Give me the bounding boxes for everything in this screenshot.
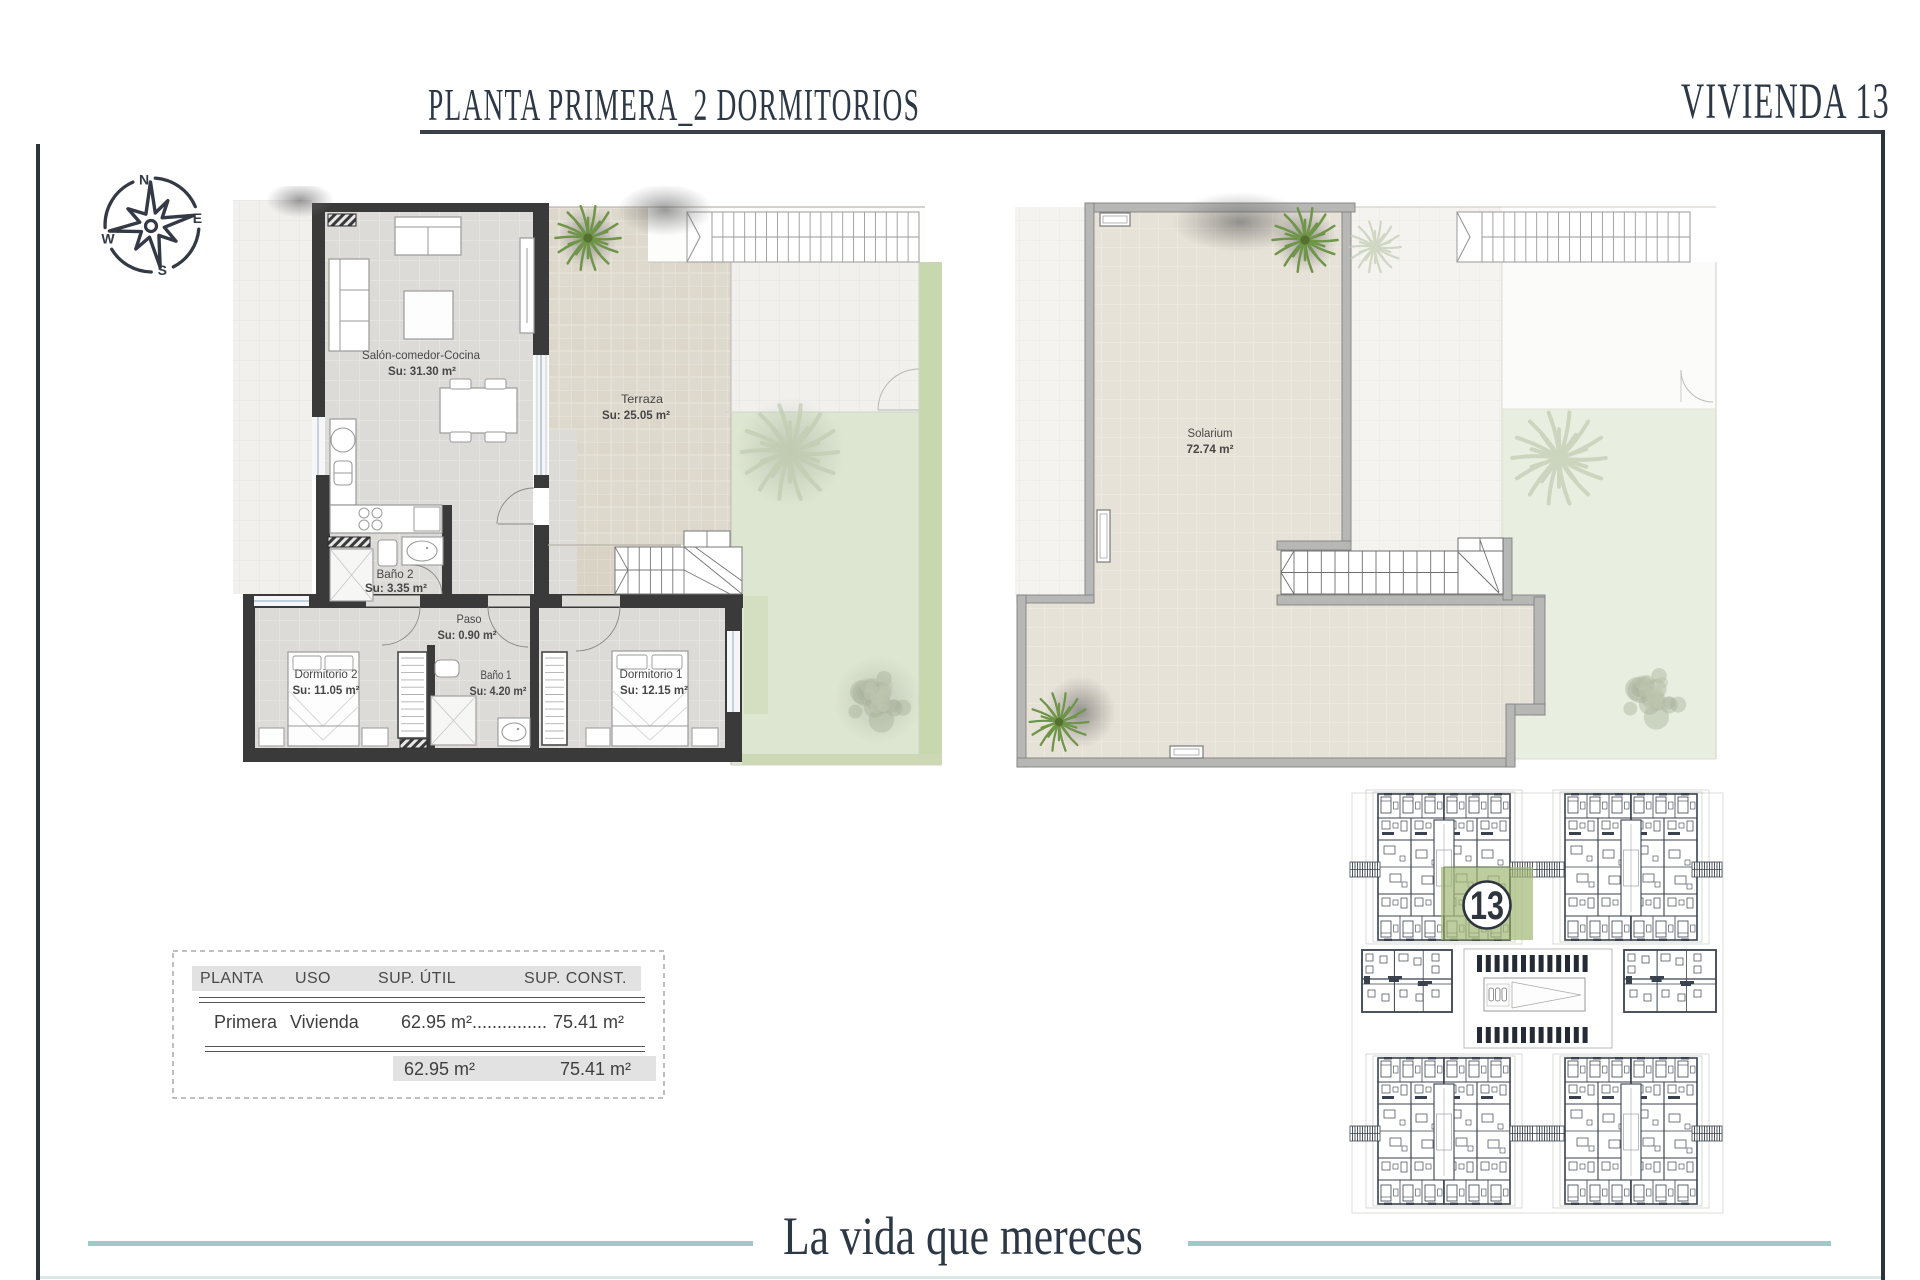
svg-text:Su: 11.05 m²: Su: 11.05 m²: [293, 683, 360, 697]
svg-text:Su: 4.20 m²: Su: 4.20 m²: [470, 684, 527, 698]
svg-text:Paso: Paso: [457, 612, 482, 626]
svg-text:72.74 m²: 72.74 m²: [1187, 442, 1234, 456]
svg-text:Su: 25.05 m²: Su: 25.05 m²: [602, 408, 670, 422]
svg-text:Terraza: Terraza: [621, 392, 663, 406]
svg-text:N: N: [139, 172, 149, 188]
svg-text:Su: 0.90 m²: Su: 0.90 m²: [438, 628, 497, 642]
svg-text:Dormitorio 2: Dormitorio 2: [295, 667, 358, 681]
svg-text:E: E: [193, 210, 202, 226]
svg-text:Su: 31.30 m²: Su: 31.30 m²: [388, 364, 456, 378]
svg-text:Su: 3.35 m²: Su: 3.35 m²: [365, 581, 427, 595]
svg-text:Baño 1: Baño 1: [481, 668, 512, 682]
svg-text:Dormitorio 1: Dormitorio 1: [620, 667, 683, 681]
svg-text:Su: 12.15 m²: Su: 12.15 m²: [620, 683, 688, 697]
svg-text:13: 13: [1470, 884, 1504, 928]
svg-text:Baño 2: Baño 2: [377, 567, 414, 581]
svg-text:W: W: [101, 230, 115, 246]
svg-text:Salón-comedor-Cocina: Salón-comedor-Cocina: [362, 348, 480, 362]
svg-text:S: S: [158, 262, 167, 278]
svg-text:Solarium: Solarium: [1188, 426, 1233, 440]
